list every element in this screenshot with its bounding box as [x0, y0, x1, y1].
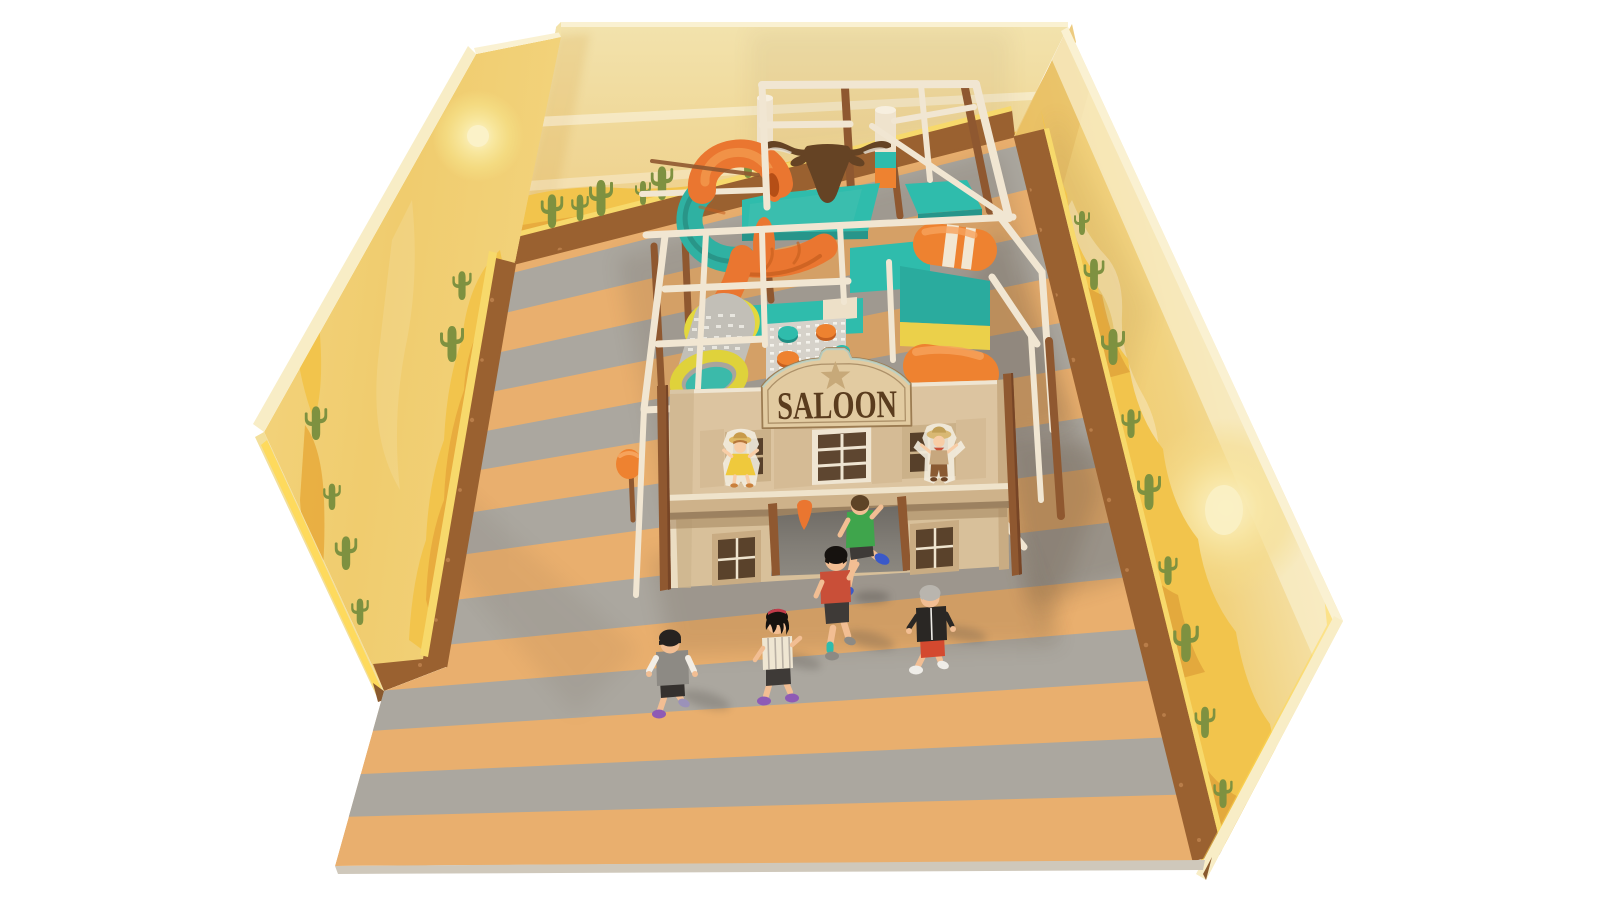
svg-text:SALOON: SALOON	[777, 383, 898, 428]
